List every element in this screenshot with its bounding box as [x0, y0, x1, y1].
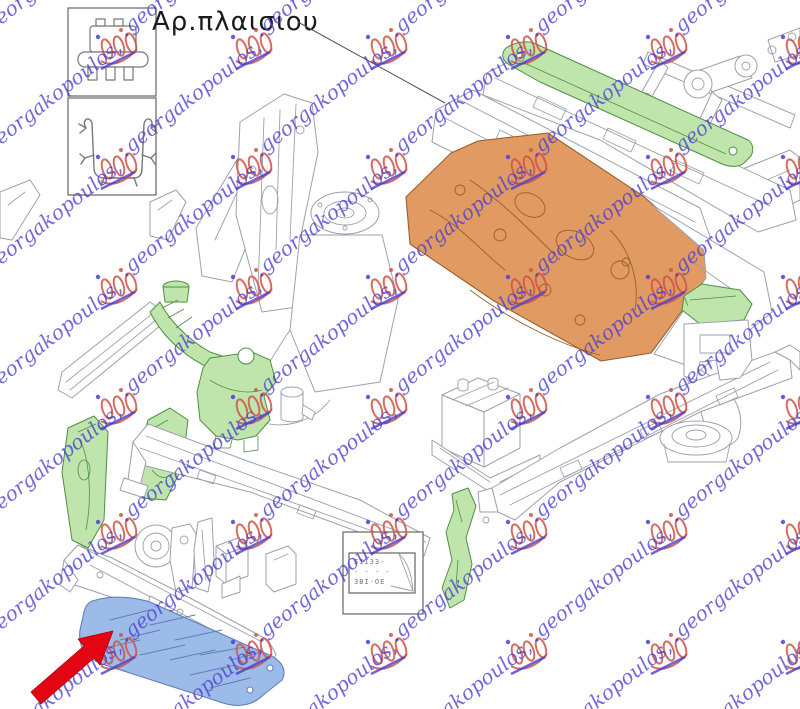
watermark-text: georgakopoulos,: [0, 400, 126, 522]
watermark-text: georgakopoulos,: [669, 635, 800, 709]
watermark-text: georgakopoulos,: [529, 520, 676, 642]
watermark-text: georgakopoulos,: [529, 0, 676, 37]
parts-diagram-page: Αρ.πλαισιου: [0, 0, 800, 709]
spring-seat-cup: [660, 421, 732, 462]
watermark-text: georgakopoulos,: [669, 0, 800, 37]
watermark-text: georgakopoulos,: [669, 520, 800, 642]
washer-pump: [281, 387, 315, 422]
diagram-canvas: Αρ.πλαισιου: [0, 0, 800, 709]
sticker-line-3: 3BI-OE: [354, 578, 385, 586]
watermark-text: georgakopoulos,: [389, 0, 536, 37]
watermark-text: georgakopoulos,: [254, 35, 401, 157]
